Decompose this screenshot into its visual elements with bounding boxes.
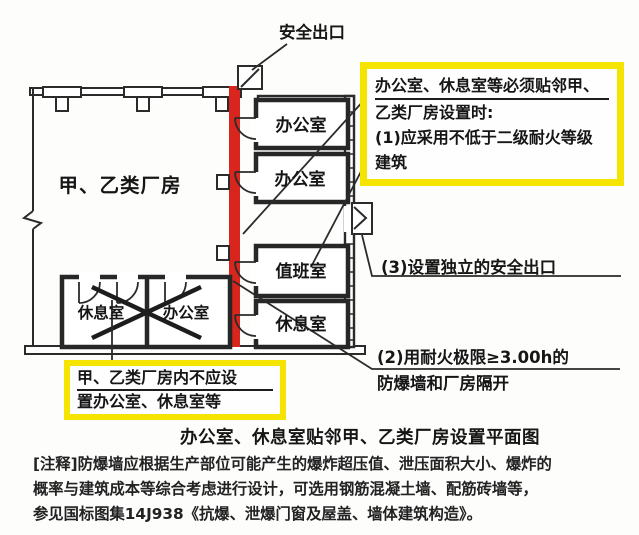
room-label-duty: 值班室 bbox=[276, 261, 327, 282]
room-label-office-1: 办公室 bbox=[276, 115, 327, 136]
wall-pier bbox=[43, 87, 81, 111]
firewall-annotation: (2)用耐火极限≥3.00h的 防爆墙和厂房隔开 bbox=[377, 345, 569, 397]
break-line-symbol bbox=[24, 88, 41, 351]
prohibited-label-rest: 休息室 bbox=[77, 303, 125, 322]
safety-exit-label: 安全出口 bbox=[279, 22, 345, 42]
firewall-annotation-line-1: (2)用耐火极限≥3.00h的 bbox=[377, 345, 569, 371]
notes-line-1: [注释]防爆墙应根据生产部位可能产生的爆炸超压值、泄压面积大小、爆炸的 bbox=[33, 452, 618, 477]
independent-exit-door bbox=[344, 203, 372, 234]
firewall-annotation-line-2: 防爆墙和厂房隔开 bbox=[377, 371, 569, 397]
prohibited-label-office: 办公室 bbox=[163, 303, 210, 322]
wall-pier bbox=[124, 87, 162, 111]
room-label-rest: 休息室 bbox=[275, 314, 327, 335]
prohibition-line-1: 甲、乙类厂房内不应设 bbox=[77, 367, 273, 391]
wall-pier bbox=[217, 246, 229, 260]
notes-line-3: 参见国标图集14J938《抗爆、泄爆门窗及屋盖、墙体建筑构造》。 bbox=[33, 502, 618, 527]
adjacency-line-2: 乙类厂房设置时: bbox=[375, 100, 609, 125]
room-label-office-2: 办公室 bbox=[275, 169, 326, 190]
leader-safety-exit bbox=[252, 44, 287, 70]
safety-exit-door bbox=[238, 66, 262, 89]
factory-label: 甲、乙类厂房 bbox=[58, 174, 181, 197]
wall-pier bbox=[217, 175, 229, 189]
prohibition-box: 甲、乙类厂房内不应设 置办公室、休息室等 bbox=[64, 360, 286, 420]
independent-exit-annotation: (3)设置独立的安全出口 bbox=[381, 254, 556, 278]
notes-line-2: 概率与建筑成本等综合考虑进行设计，可选用钢筋混凝土墙、配筋砖墙等， bbox=[33, 477, 618, 502]
notes-paragraph: [注释]防爆墙应根据生产部位可能产生的爆炸超压值、泄压面积大小、爆炸的 概率与建… bbox=[33, 452, 618, 527]
adjacency-line-4: 建筑 bbox=[375, 150, 609, 175]
prohibition-line-2: 置办公室、休息室等 bbox=[77, 391, 273, 413]
diagram-page: 安全出口 甲、乙类厂房 办公室 办公室 值班室 休息室 休息室 办公室 办公室、… bbox=[0, 0, 639, 535]
adjacency-line-1: 办公室、休息室等必须贴邻甲、 bbox=[375, 73, 609, 100]
figure-caption: 办公室、休息室贴邻甲、乙类厂房设置平面图 bbox=[120, 424, 600, 449]
adjacency-requirement-box: 办公室、休息室等必须贴邻甲、 乙类厂房设置时: (1)应采用不低于二级耐火等级 … bbox=[360, 62, 624, 186]
adjacency-line-3: (1)应采用不低于二级耐火等级 bbox=[375, 125, 609, 150]
